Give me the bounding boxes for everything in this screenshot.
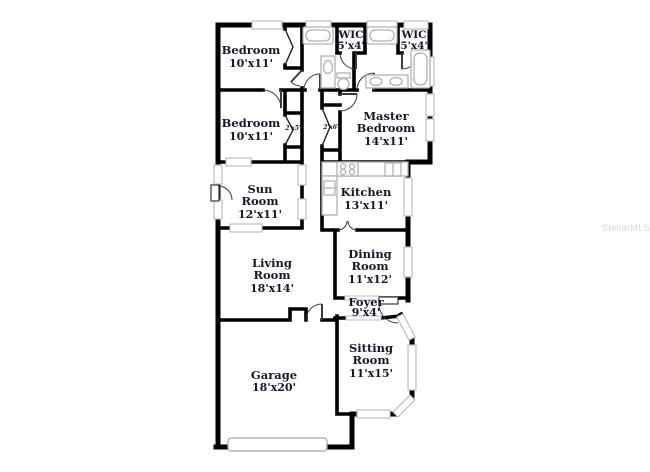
room-label-closet-left: 2'x5': [284, 125, 301, 132]
room-dims: 10'x11': [229, 130, 273, 143]
room-label-garage: Garage 18'x20': [251, 368, 297, 394]
window: [214, 200, 222, 219]
fridge-icon: [385, 163, 401, 176]
room-name: Bedroom: [222, 116, 281, 130]
room-dims: 5'x4': [400, 40, 427, 52]
window: [397, 314, 415, 340]
room-label-master-bedroom: Master Bedroom 14'x11': [357, 109, 416, 148]
window: [404, 21, 428, 29]
floor-plan-canvas: Bedroom 10'x11' WIC 5'x4' WIC 5'x4' Bedr…: [0, 0, 650, 472]
room-dims: 11'x15': [349, 367, 393, 380]
toilet-icon: [337, 73, 350, 90]
window: [226, 158, 251, 166]
stellar-mls-watermark: StellarMLS: [602, 223, 650, 233]
bathtub-icon: [303, 27, 333, 44]
room-label-living-room: Living Room 18'x14': [250, 256, 294, 295]
room-dims: 14'x11': [364, 135, 408, 148]
room-label-foyer: Foyer 9'x4': [348, 295, 384, 319]
window: [393, 395, 415, 417]
window: [404, 178, 412, 216]
door-bedroom-mid: [263, 90, 281, 108]
room-name: Kitchen: [341, 185, 392, 199]
opening-kitchen-dining-arcs: [338, 221, 357, 230]
room-label-bedroom-top: Bedroom 10'x11': [222, 43, 281, 70]
door-hall-bath: [304, 74, 320, 90]
room-name: Room: [352, 353, 389, 367]
floor-plan-image: Bedroom 10'x11' WIC 5'x4' WIC 5'x4' Bedr…: [0, 0, 650, 472]
window: [426, 119, 434, 141]
room-dims: 12'x11': [238, 208, 282, 221]
room-dims: 18'x14': [250, 282, 294, 295]
room-label-sitting-room: Sitting Room 11'x15': [349, 341, 393, 380]
room-name: Room: [253, 268, 290, 282]
room-label-dining-room: Dining Room 11'x12': [348, 247, 392, 286]
window: [404, 247, 412, 277]
room-dims: 2'x6': [322, 124, 339, 131]
room-name: Garage: [251, 368, 297, 382]
room-dims: 10'x11': [229, 57, 273, 70]
window: [298, 199, 306, 219]
wall-exterior-bay-bottom: [216, 315, 412, 447]
stove-icon: [337, 162, 358, 176]
room-label-bedroom-mid: Bedroom 10'x11': [222, 116, 281, 143]
room-name: Room: [351, 259, 388, 273]
room-name: Room: [241, 194, 278, 208]
room-label-closet-right: 2'x6': [322, 124, 339, 131]
garage-door: [228, 438, 327, 451]
room-name: Bedroom: [357, 121, 416, 135]
door-garage: [306, 304, 322, 320]
window: [230, 224, 262, 232]
window: [298, 165, 306, 185]
room-dims: 5'x4': [337, 40, 364, 52]
room-label-wic-left: WIC 5'x4': [337, 29, 364, 52]
room-name: Bedroom: [222, 43, 281, 57]
room-label-sun-room: Sun Room 12'x11': [238, 182, 282, 221]
door-bedroom-top: [291, 70, 302, 86]
room-dims: 11'x12': [348, 273, 392, 286]
window: [408, 345, 416, 390]
room-label-wic-right: WIC 5'x4': [400, 29, 427, 52]
bathtub-icon: [367, 27, 397, 44]
door-master-bedroom: [340, 94, 357, 111]
room-dims: 18'x20': [252, 381, 296, 394]
sink-vanity-icon: [321, 56, 335, 88]
window: [426, 94, 434, 116]
window: [214, 165, 222, 184]
room-dims: 9'x4': [352, 306, 381, 319]
door-sun-room: [211, 185, 232, 201]
room-label-kitchen: Kitchen 13'x11': [341, 185, 392, 212]
room-dims: 13'x11': [344, 199, 388, 212]
bathtub-icon: [411, 50, 430, 88]
window: [252, 21, 282, 29]
double-sink-vanity-icon: [366, 75, 408, 88]
window: [357, 410, 390, 418]
room-dims: 2'x5': [284, 125, 301, 132]
